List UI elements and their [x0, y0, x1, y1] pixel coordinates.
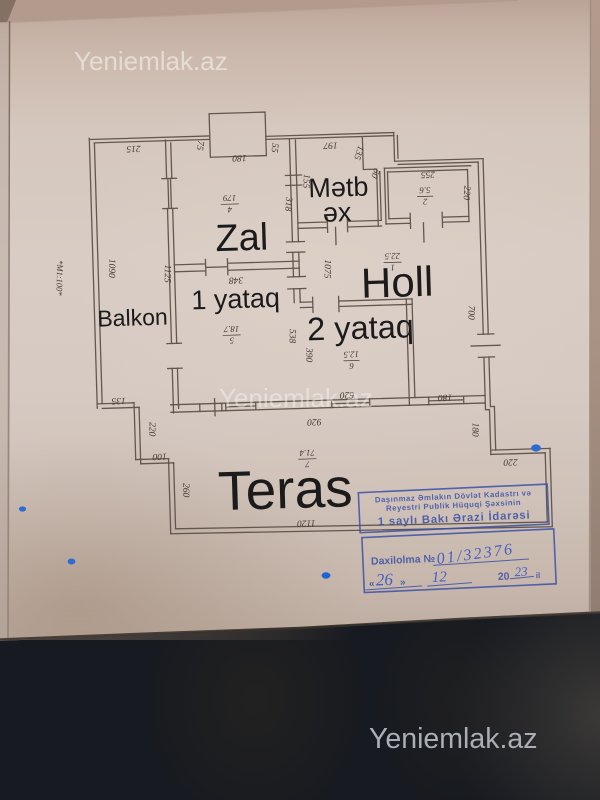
svg-text:220: 220 [146, 422, 156, 437]
svg-text:1075: 1075 [322, 259, 332, 278]
svg-text:215: 215 [126, 143, 141, 153]
svg-text:538: 538 [287, 329, 297, 344]
svg-text:Teras: Teras [217, 456, 353, 522]
svg-text:220: 220 [503, 456, 518, 466]
svg-text:20: 20 [498, 570, 510, 583]
svg-text:1120: 1120 [297, 517, 316, 528]
svg-text:«: « [369, 579, 375, 590]
svg-text:75: 75 [194, 140, 205, 151]
svg-text:318: 318 [282, 196, 293, 212]
svg-text:Yeniemlak.az: Yeniemlak.az [74, 46, 228, 76]
svg-text:197: 197 [322, 139, 338, 149]
svg-text:920: 920 [307, 416, 322, 426]
svg-text:155: 155 [300, 174, 311, 189]
svg-text:180: 180 [232, 152, 247, 162]
svg-text:700: 700 [465, 305, 475, 320]
svg-text:1 yataq: 1 yataq [191, 283, 280, 316]
svg-text:12.5: 12.5 [343, 349, 359, 359]
svg-text:180: 180 [438, 392, 453, 402]
svg-text:71.4: 71.4 [299, 448, 315, 458]
svg-text:26: 26 [375, 570, 393, 590]
svg-text:il: il [536, 571, 541, 580]
svg-text:Balkon: Balkon [97, 304, 168, 332]
svg-text:Zal: Zal [215, 217, 269, 261]
svg-text:180: 180 [469, 422, 479, 437]
svg-text:12: 12 [431, 569, 447, 586]
svg-text:348: 348 [229, 274, 245, 284]
svg-text:135: 135 [111, 395, 126, 405]
svg-text:179: 179 [222, 193, 236, 203]
svg-text:5.6: 5.6 [419, 185, 431, 195]
svg-text:1125: 1125 [162, 264, 172, 283]
svg-text:2 yataq: 2 yataq [307, 308, 415, 347]
svg-text:255: 255 [420, 169, 435, 179]
svg-text:Holl: Holl [360, 258, 434, 307]
svg-text:18.7: 18.7 [223, 324, 239, 334]
svg-text:1090: 1090 [106, 259, 116, 278]
svg-text:Yeniemlak.az: Yeniemlak.az [369, 723, 537, 755]
svg-text:Yeniemlak.az: Yeniemlak.az [219, 383, 373, 413]
svg-text:22.5: 22.5 [384, 251, 400, 261]
svg-text:55: 55 [268, 142, 279, 153]
svg-text:*M1:100*: *M1:100* [54, 260, 65, 296]
svg-text:100: 100 [152, 451, 167, 461]
svg-text:220: 220 [461, 185, 472, 200]
svg-text:260: 260 [180, 483, 190, 498]
svg-text:1: 1 [390, 263, 395, 273]
svg-text:əx: əx [322, 197, 352, 228]
svg-text:390: 390 [303, 347, 313, 363]
